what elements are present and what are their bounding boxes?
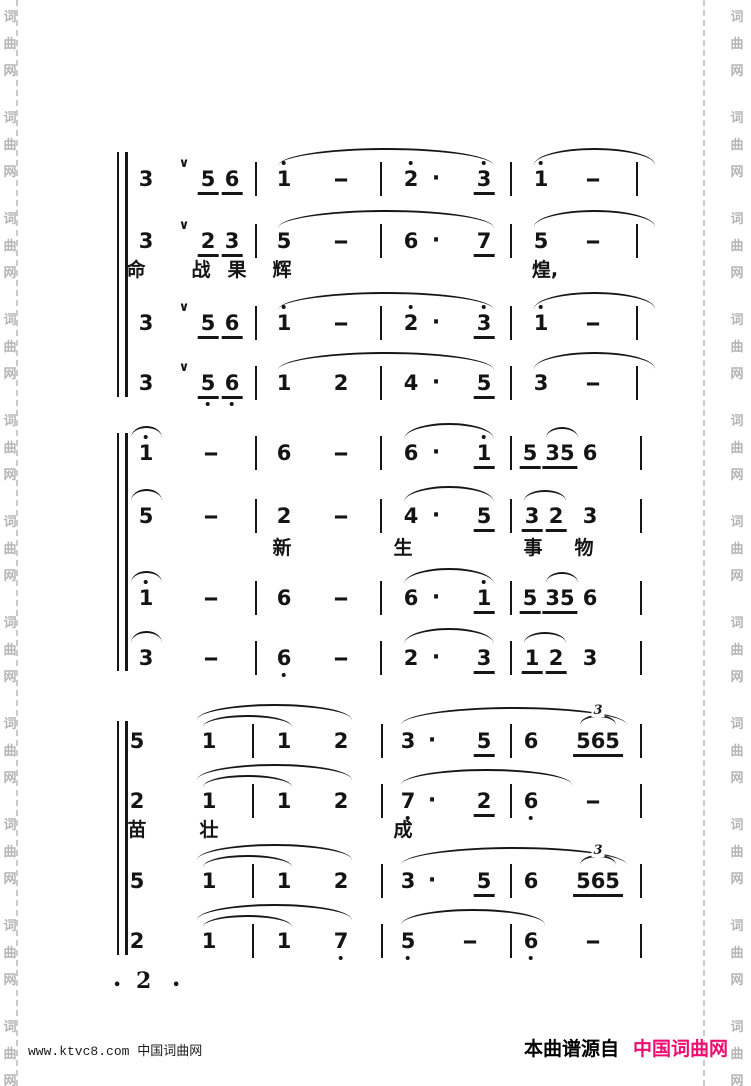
slur [401, 909, 545, 925]
note: 1 [202, 868, 217, 894]
note: 2 [334, 728, 349, 754]
slur [404, 628, 494, 644]
barline [380, 581, 382, 615]
dash-extension: - [585, 928, 602, 954]
duration-dot: · [432, 440, 440, 466]
dash-extension: - [333, 440, 350, 466]
page-number: 2 [136, 968, 151, 994]
note: 35 [542, 585, 577, 614]
note: 1 [277, 928, 292, 954]
score-line: 21127·26- [0, 788, 665, 818]
dash-extension: - [585, 228, 602, 254]
slur [404, 568, 494, 584]
dash-extension: - [333, 166, 350, 192]
note: 1 [277, 728, 292, 754]
note: 6 [524, 788, 539, 814]
dash-extension: - [203, 440, 220, 466]
footer-source-label: 本曲谱源自 [524, 1034, 619, 1061]
barline [510, 784, 512, 818]
score-line: 351123·56565 [0, 728, 665, 758]
barline [636, 224, 638, 258]
note: 3 [139, 228, 154, 254]
barline [380, 436, 382, 470]
note: 2 [474, 788, 495, 817]
note: 7 [474, 228, 495, 257]
barline [255, 499, 257, 533]
note: 1 [202, 728, 217, 754]
note: 6 [222, 370, 243, 399]
barline [255, 162, 257, 196]
score-line: 3-6-2·3123 [0, 645, 665, 675]
barline [510, 924, 512, 958]
dash-extension: - [462, 928, 479, 954]
lyric-syllable: 生 [393, 535, 412, 561]
note: 5 [277, 228, 292, 254]
barline [381, 724, 383, 758]
dash-extension: - [333, 585, 350, 611]
note: 5 [474, 868, 495, 897]
barline [381, 784, 383, 818]
barline [510, 436, 512, 470]
slur [404, 486, 494, 502]
note: 1 [277, 166, 292, 192]
note: 2 [404, 310, 419, 336]
note: 3 [534, 370, 549, 396]
duration-dot: · [432, 228, 440, 254]
note: 5 [474, 370, 495, 399]
score-line: 3∨235-6·75- [0, 228, 665, 258]
score-line: 3∨56124·53- [0, 370, 665, 400]
note: 5 [198, 370, 219, 399]
slur [404, 423, 494, 439]
barline [255, 366, 257, 400]
lyrics-line: 苗壮成 [0, 817, 665, 847]
barline [510, 162, 512, 196]
footer-brand: 中国词曲网 [633, 1034, 728, 1061]
note: 1 [534, 310, 549, 336]
barline [255, 641, 257, 675]
note: 3 [474, 645, 495, 674]
barline [510, 306, 512, 340]
dash-extension: - [333, 645, 350, 671]
note: 6 [404, 228, 419, 254]
barline [380, 162, 382, 196]
lyric-syllable: 事 [523, 535, 542, 561]
breath-mark: ∨ [179, 151, 190, 177]
note: 5 [130, 728, 145, 754]
note: 4 [404, 503, 419, 529]
barline [636, 366, 638, 400]
slur [278, 352, 494, 370]
note: 5 [520, 585, 541, 614]
slur [524, 632, 566, 643]
dash-extension: - [203, 645, 220, 671]
note: 3 [222, 228, 243, 257]
dash-extension: - [333, 228, 350, 254]
note: 3 [401, 728, 416, 754]
barline [636, 306, 638, 340]
dash-extension: - [203, 503, 220, 529]
note: 1 [139, 440, 154, 466]
slur [278, 148, 494, 166]
note: 2 [277, 503, 292, 529]
triplet-number: 3 [591, 844, 604, 857]
note: 1 [534, 166, 549, 192]
note: 2 [334, 788, 349, 814]
barline [636, 162, 638, 196]
barline [380, 499, 382, 533]
note: 3 [474, 310, 495, 339]
duration-dot: · [432, 645, 440, 671]
note: 2 [198, 228, 219, 257]
breath-mark: ∨ [179, 355, 190, 381]
score-line: 1-6-6·15356 [0, 440, 665, 470]
dash-extension: - [333, 503, 350, 529]
page-number-right-dot: • [172, 978, 180, 993]
note: 1 [277, 788, 292, 814]
barline [510, 366, 512, 400]
note: 7 [401, 788, 416, 814]
note: 6 [524, 868, 539, 894]
footer-site-url: www.ktvc8.com 中国词曲网 [28, 1040, 202, 1059]
lyric-syllable: 煌, [532, 257, 558, 283]
note: 6 [277, 585, 292, 611]
lyrics-line: 新生事物 [0, 535, 665, 565]
score-line: 351123·56565 [0, 868, 665, 898]
note: 6 [524, 728, 539, 754]
dash-extension: - [203, 585, 220, 611]
slur [524, 490, 566, 501]
note: 565 [573, 728, 623, 757]
note: 3 [139, 166, 154, 192]
note: 1 [474, 585, 495, 614]
lyric-syllable: 壮 [199, 817, 218, 843]
duration-dot: · [428, 788, 436, 814]
barline [640, 784, 642, 818]
note: 7 [334, 928, 349, 954]
barline [252, 784, 254, 818]
note: 3 [139, 370, 154, 396]
dash-extension: - [585, 370, 602, 396]
score-line: 1-6-6·15356 [0, 585, 665, 615]
lyric-syllable: 成 [393, 817, 412, 843]
barline [640, 499, 642, 533]
triplet-number: 3 [591, 704, 604, 717]
barline [255, 436, 257, 470]
note: 2 [334, 370, 349, 396]
note: 1 [474, 440, 495, 469]
barline [255, 581, 257, 615]
slur [278, 210, 494, 228]
slur [131, 631, 162, 643]
barline [255, 306, 257, 340]
barline [380, 641, 382, 675]
lyric-syllable: 果 [227, 257, 246, 283]
note: 1 [139, 585, 154, 611]
note: 5 [130, 868, 145, 894]
note: 1 [277, 370, 292, 396]
barline [380, 366, 382, 400]
lyric-syllable: 命 [126, 257, 145, 283]
note: 6 [404, 585, 419, 611]
note: 5 [198, 310, 219, 339]
slur [546, 572, 578, 583]
note: 6 [404, 440, 419, 466]
dash-extension: - [585, 788, 602, 814]
slur [278, 292, 494, 310]
note: 1 [202, 928, 217, 954]
barline [252, 924, 254, 958]
duration-dot: · [428, 868, 436, 894]
note: 5 [401, 928, 416, 954]
sheet-music-page: 词曲网词曲网词曲网词曲网词曲网词曲网词曲网词曲网词曲网词曲网词曲网 词曲网词曲网… [0, 0, 751, 1086]
note: 1 [277, 868, 292, 894]
barline [640, 641, 642, 675]
note: 3 [474, 166, 495, 195]
note: 4 [404, 370, 419, 396]
note: 565 [573, 868, 623, 897]
lyric-syllable: 战 [191, 257, 210, 283]
note: 2 [546, 645, 567, 674]
note: 5 [474, 728, 495, 757]
note: 5 [139, 503, 154, 529]
note: 5 [520, 440, 541, 469]
barline [640, 436, 642, 470]
dash-extension: - [333, 310, 350, 336]
score-line: 3∨561-2·31- [0, 310, 665, 340]
barline [381, 924, 383, 958]
note: 6 [524, 928, 539, 954]
duration-dot: · [432, 370, 440, 396]
note: 3 [139, 310, 154, 336]
note: 5 [474, 503, 495, 532]
note: 6 [222, 310, 243, 339]
slur [131, 489, 162, 501]
barline [510, 224, 512, 258]
score-line: 3∨561-2·31- [0, 166, 665, 196]
duration-dot: · [432, 310, 440, 336]
barline [640, 924, 642, 958]
note: 2 [404, 645, 419, 671]
barline [381, 864, 383, 898]
barline [510, 864, 512, 898]
note: 35 [542, 440, 577, 469]
score-line: 5-2-4·5323 [0, 503, 665, 533]
duration-dot: · [432, 166, 440, 192]
barline [510, 724, 512, 758]
barline [510, 499, 512, 533]
note: 6 [583, 585, 598, 611]
note: 3 [583, 503, 598, 529]
note: 1 [277, 310, 292, 336]
note: 1 [202, 788, 217, 814]
note: 2 [404, 166, 419, 192]
breath-mark: ∨ [179, 213, 190, 239]
note: 2 [546, 503, 567, 532]
barline [252, 864, 254, 898]
note: 5 [198, 166, 219, 195]
note: 2 [334, 868, 349, 894]
note: 2 [130, 788, 145, 814]
duration-dot: · [432, 503, 440, 529]
note: 5 [534, 228, 549, 254]
note: 3 [401, 868, 416, 894]
note: 6 [583, 440, 598, 466]
dash-extension: - [585, 310, 602, 336]
lyrics-line: 命战果辉煌, [0, 257, 665, 287]
note: 6 [277, 440, 292, 466]
note: 3 [583, 645, 598, 671]
dash-extension: - [585, 166, 602, 192]
lyric-syllable: 苗 [127, 817, 146, 843]
music-score: 3∨561-2·31-3∨235-6·75-命战果辉煌,3∨561-2·31-3… [0, 0, 751, 1086]
barline [255, 224, 257, 258]
note: 3 [139, 645, 154, 671]
barline [380, 306, 382, 340]
slur [546, 427, 578, 438]
duration-dot: · [432, 585, 440, 611]
note: 6 [277, 645, 292, 671]
note: 2 [130, 928, 145, 954]
barline [252, 724, 254, 758]
duration-dot: · [428, 728, 436, 754]
lyric-syllable: 物 [574, 535, 593, 561]
note: 1 [522, 645, 543, 674]
barline [640, 581, 642, 615]
barline [640, 724, 642, 758]
breath-mark: ∨ [179, 295, 190, 321]
barline [510, 641, 512, 675]
lyric-syllable: 辉 [272, 257, 291, 283]
score-line: 21175-6- [0, 928, 665, 958]
page-number-left-dot: • [113, 978, 121, 993]
barline [640, 864, 642, 898]
barline [510, 581, 512, 615]
note: 3 [522, 503, 543, 532]
note: 6 [222, 166, 243, 195]
slur [401, 769, 572, 785]
lyric-syllable: 新 [272, 535, 291, 561]
barline [380, 224, 382, 258]
